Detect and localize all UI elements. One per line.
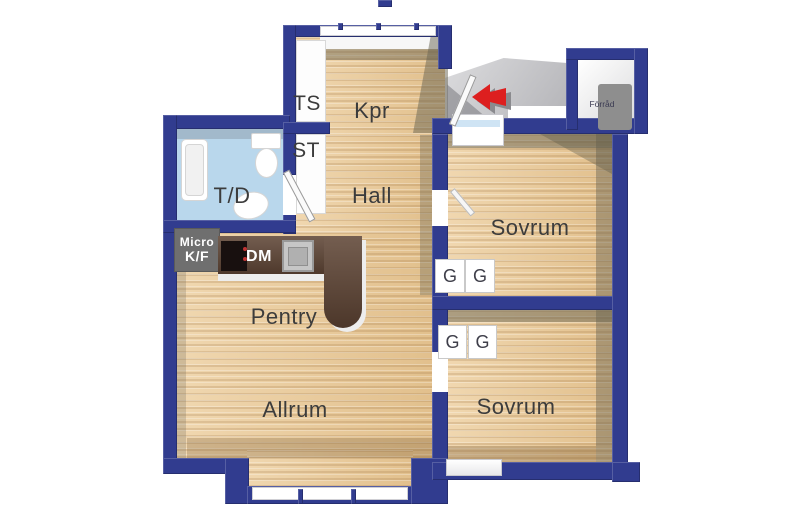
wardrobe-label: G bbox=[445, 332, 459, 353]
wardrobe-label: G bbox=[443, 266, 457, 287]
room-label-kpr: Kpr bbox=[354, 98, 390, 124]
wardrobe-label: G bbox=[475, 332, 489, 353]
wall bbox=[612, 462, 640, 482]
entrance-arrow-icon bbox=[470, 82, 514, 116]
wall bbox=[566, 48, 578, 130]
wall bbox=[163, 115, 177, 474]
stove bbox=[221, 241, 247, 271]
wall bbox=[378, 0, 392, 7]
room-label-hall: Hall bbox=[352, 183, 392, 209]
window-mullion bbox=[414, 23, 419, 30]
kitchen-sink-basin bbox=[288, 247, 308, 266]
toilet-bowl bbox=[255, 148, 278, 178]
wall bbox=[634, 48, 648, 134]
room-label-living: Allrum bbox=[262, 397, 327, 423]
window-mullion bbox=[298, 489, 303, 504]
wardrobe: G bbox=[468, 325, 497, 359]
floorplan-canvas: Micro K/F G G G G Kpr Hall T/D TS ST Sov… bbox=[0, 0, 793, 530]
wardrobe: G bbox=[438, 325, 467, 359]
wall bbox=[612, 134, 628, 480]
entry-threshold bbox=[452, 114, 504, 146]
entry-threshold-step bbox=[456, 120, 500, 127]
window-sill bbox=[320, 37, 438, 49]
bathtub-inner bbox=[185, 144, 204, 196]
fridge-freezer-label: K/F bbox=[185, 249, 209, 264]
room-label-pantry: Pentry bbox=[251, 304, 318, 330]
window-mullion bbox=[376, 23, 381, 30]
wall bbox=[283, 122, 330, 134]
room-label-closet-st: ST bbox=[292, 139, 320, 163]
wall bbox=[432, 296, 628, 310]
wall bbox=[225, 458, 249, 504]
window-mullion bbox=[338, 23, 343, 30]
room-label-bathroom: T/D bbox=[214, 183, 251, 209]
kitchen-counter-peninsula bbox=[324, 236, 362, 328]
window bbox=[446, 459, 502, 476]
toilet-tank bbox=[251, 133, 281, 149]
dishwasher-label: DM bbox=[246, 248, 272, 266]
room-label-storage: Förråd bbox=[589, 99, 614, 109]
window-mullion bbox=[351, 489, 356, 504]
wardrobe-label: G bbox=[473, 266, 487, 287]
room-floor-bay bbox=[247, 450, 413, 488]
room-label-closet-ts: TS bbox=[293, 92, 321, 116]
door-opening bbox=[432, 190, 448, 226]
wardrobe: G bbox=[435, 259, 465, 293]
bay-window bbox=[252, 487, 408, 500]
wall bbox=[163, 115, 290, 129]
room-label-bedroom2: Sovrum bbox=[477, 394, 556, 420]
wall bbox=[438, 25, 452, 69]
wardrobe: G bbox=[465, 259, 495, 293]
microwave-fridge-box: Micro K/F bbox=[174, 228, 220, 272]
room-label-bedroom1: Sovrum bbox=[491, 215, 570, 241]
landing-sill bbox=[508, 106, 566, 118]
